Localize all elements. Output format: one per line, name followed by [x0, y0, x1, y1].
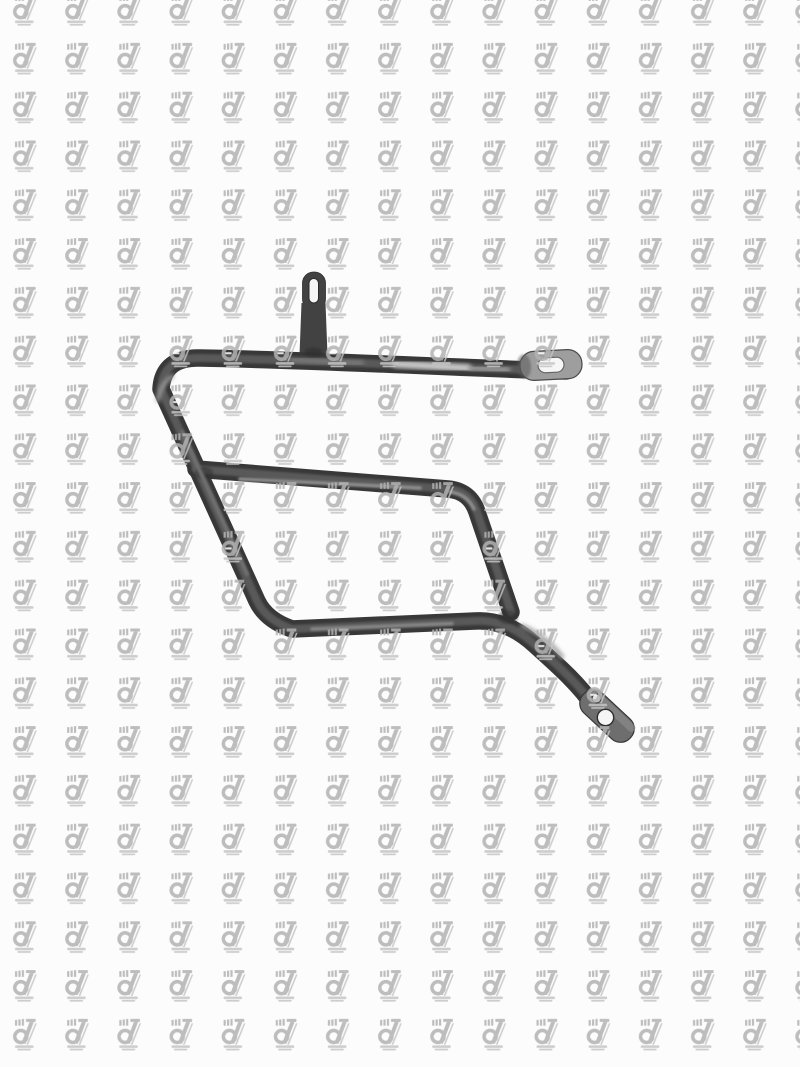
product-photo-page [0, 0, 800, 1067]
watermark-overlay [0, 0, 800, 1067]
product-photo-canvas [0, 0, 800, 1067]
